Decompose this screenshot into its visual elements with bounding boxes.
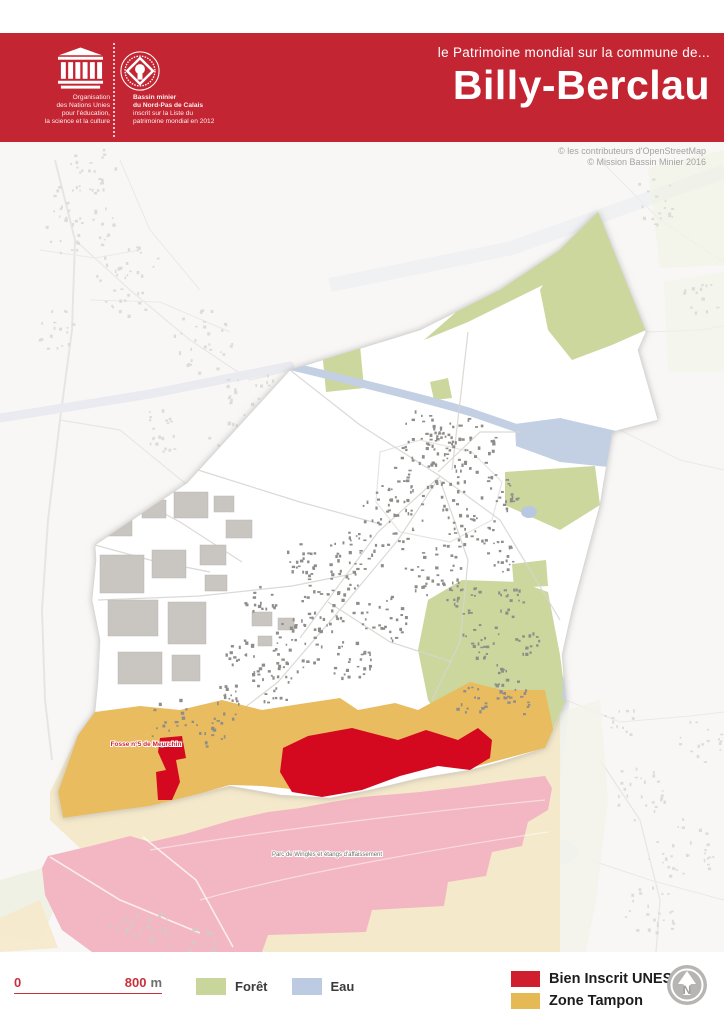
poster-title: Billy-Berclau — [438, 64, 710, 107]
wh-line: patrimoine mondial en 2012 — [133, 118, 233, 126]
legend-item-foret: Forêt — [196, 978, 268, 995]
wh-line: inscrit sur la Liste du — [133, 110, 233, 118]
scale-end: 800 — [125, 975, 147, 990]
credit-mbm: © Mission Bassin Minier 2016 — [587, 157, 706, 167]
world-heritage-text: Bassin minier du Nord-Pas de Calais insc… — [133, 94, 233, 126]
dotted-separator — [113, 43, 115, 137]
scale-bar: 0 800m — [14, 975, 162, 994]
map-svg: Fosse n°5 de Meurchin Parc de Wingles et… — [0, 142, 724, 952]
pond — [521, 506, 537, 518]
title-block: le Patrimoine mondial sur la commune de.… — [438, 45, 710, 107]
credit-osm: © les contributeurs d'OpenStreetMap — [558, 146, 706, 156]
unesco-logo-icon — [57, 46, 104, 93]
org-line: des Nations Unies — [0, 102, 110, 110]
eau-label: Eau — [331, 979, 355, 994]
label-parc: Parc de Wingles et étangs d'affaissement — [272, 852, 382, 858]
scale-line — [14, 993, 162, 994]
scale-start: 0 — [14, 975, 21, 990]
org-line: Organisation — [0, 94, 110, 102]
legend-item-eau: Eau — [292, 978, 355, 995]
legend-landcover: Forêt Eau — [196, 978, 354, 995]
tampon-swatch — [511, 993, 540, 1009]
org-line: la science et la culture — [0, 118, 110, 126]
foret-label: Forêt — [235, 979, 268, 994]
poster-page: Organisation des Nations Unies pour l'éd… — [0, 0, 724, 1024]
eau-swatch — [292, 978, 322, 995]
poster-subtitle: le Patrimoine mondial sur la commune de.… — [438, 45, 710, 60]
tampon-label: Zone Tampon — [549, 993, 643, 1009]
foret-swatch — [196, 978, 226, 995]
unesco-swatch — [511, 971, 540, 987]
wh-line: du Nord-Pas de Calais — [133, 102, 233, 110]
scale-unit: m — [150, 975, 162, 990]
label-fosse: Fosse n°5 de Meurchin — [111, 740, 182, 748]
north-arrow-icon: N — [666, 964, 708, 1006]
unesco-org-text: Organisation des Nations Unies pour l'éd… — [0, 94, 110, 126]
world-heritage-emblem-icon — [119, 50, 161, 92]
map-canvas: Fosse n°5 de Meurchin Parc de Wingles et… — [0, 142, 724, 952]
header-banner: Organisation des Nations Unies pour l'éd… — [0, 33, 724, 142]
org-line: pour l'éducation, — [0, 110, 110, 118]
north-label: N — [683, 983, 692, 997]
wh-line: Bassin minier — [133, 94, 233, 102]
